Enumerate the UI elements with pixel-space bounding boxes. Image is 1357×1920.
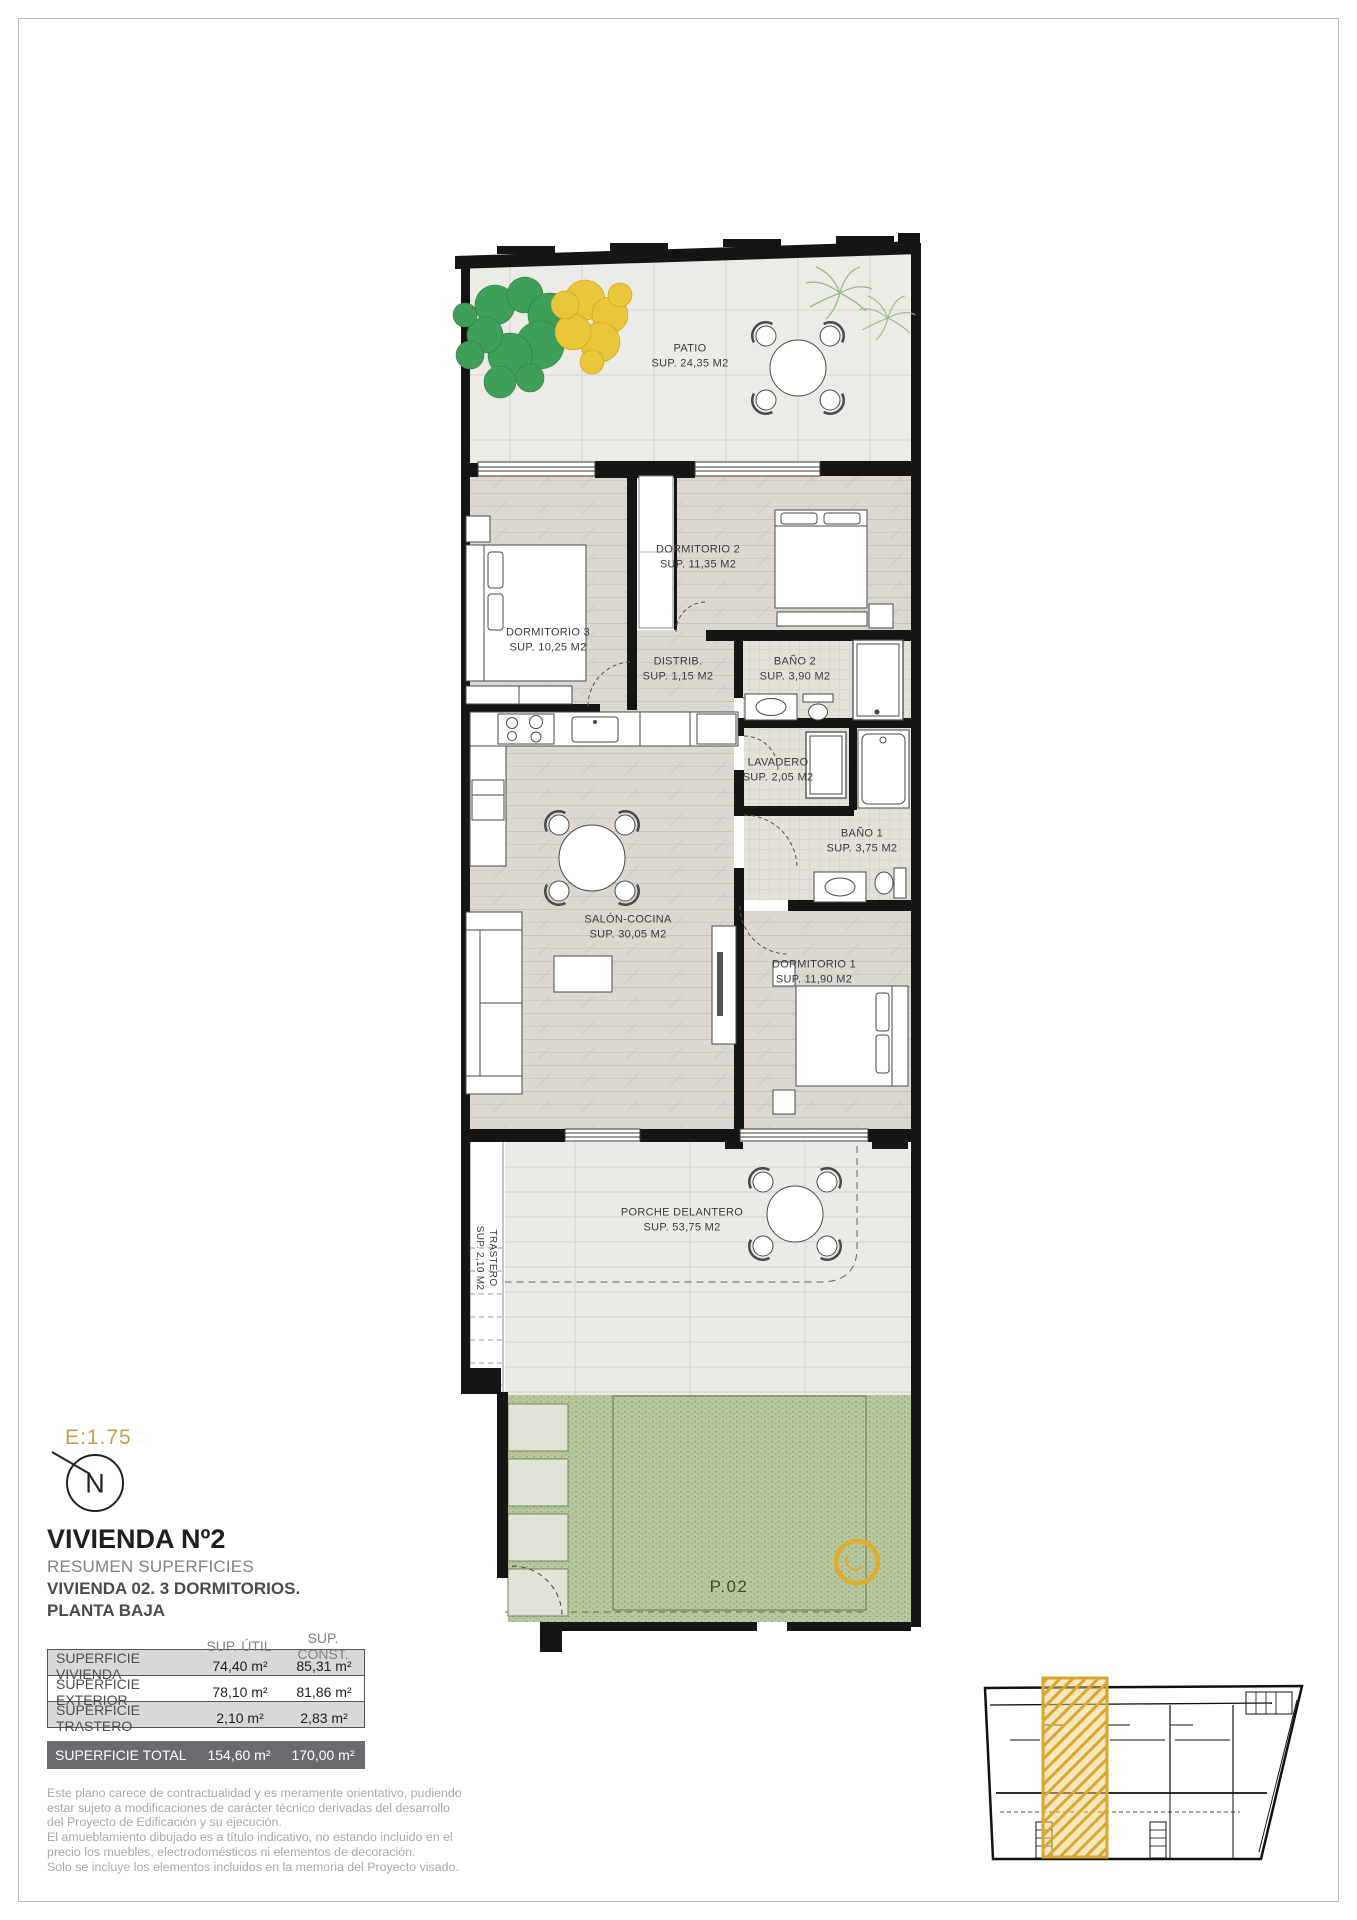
plot-label: P.02 <box>710 1577 749 1597</box>
table-total-row: SUPERFICIE TOTAL 154,60 m² 170,00 m² <box>47 1741 365 1769</box>
room-label-dormitorio-2: DORMITORIO 2SUP. 11,35 M2 <box>656 542 740 571</box>
room-label-bano-1: BAÑO 1SUP. 3,75 M2 <box>827 826 898 855</box>
note-line: estar sujeto a modificaciones de carácte… <box>47 1801 465 1816</box>
table-row: SUPERFICIE EXTERIOR 78,10 m² 81,86 m² <box>48 1675 364 1701</box>
title-dwelling-line: VIVIENDA 02. 3 DORMITORIOS. <box>47 1579 300 1599</box>
table-row: SUPERFICIE TRASTERO 2,10 m² 2,83 m² <box>48 1701 364 1727</box>
room-label-lavadero: LAVADEROSUP. 2,05 M2 <box>743 755 814 784</box>
room-label-salon-cocina: SALÓN-COCINASUP. 30,05 M2 <box>584 912 671 941</box>
scale-label: E:1.75 <box>65 1426 132 1450</box>
disclaimer-notes: Este plano carece de contractualidad y e… <box>47 1786 465 1874</box>
col-header-sup-util: SUP. ÚTIL <box>197 1638 281 1654</box>
room-label-dormitorio-3: DORMITORIO 3SUP. 10,25 M2 <box>506 625 590 654</box>
key-plan-unit-highlight <box>1043 1678 1107 1857</box>
room-label-porche: PORCHE DELANTEROSUP. 53,75 M2 <box>621 1205 743 1234</box>
areas-table: SUP. ÚTIL SUP. CONST. SUPERFICIE VIVIEND… <box>47 1630 365 1769</box>
title-floor-line: PLANTA BAJA <box>47 1601 165 1621</box>
title-subtitle: RESUMEN SUPERFICIES <box>47 1557 254 1577</box>
room-label-trastero: TRASTEROSUP. 2,10 M2 <box>473 1226 499 1291</box>
room-label-dormitorio-1: DORMITORIO 1SUP. 11,90 M2 <box>772 957 856 986</box>
areas-table-header: SUP. ÚTIL SUP. CONST. <box>47 1630 365 1649</box>
note-line: Solo se incluye los elementos incluidos … <box>47 1860 465 1875</box>
room-label-patio: PATIOSUP. 24,35 M2 <box>651 341 728 370</box>
note-line: Este plano carece de contractualidad y e… <box>47 1786 465 1801</box>
page-title: VIVIENDA Nº2 <box>47 1524 225 1555</box>
note-line: precio los muebles, electrodomésticos ni… <box>47 1845 465 1860</box>
room-label-distribuidor: DISTRIB.SUP. 1,15 M2 <box>643 654 714 683</box>
key-plan <box>985 1678 1302 1859</box>
north-letter: N <box>85 1469 105 1500</box>
note-line: El amueblamiento dibujado es a título in… <box>47 1830 465 1845</box>
plan-sheet: PATIOSUP. 24,35 M2 DORMITORIO 2SUP. 11,3… <box>0 0 1357 1920</box>
note-line: del Proyecto de Edificación y su ejecuci… <box>47 1815 465 1830</box>
room-label-bano-2: BAÑO 2SUP. 3,90 M2 <box>760 654 831 683</box>
